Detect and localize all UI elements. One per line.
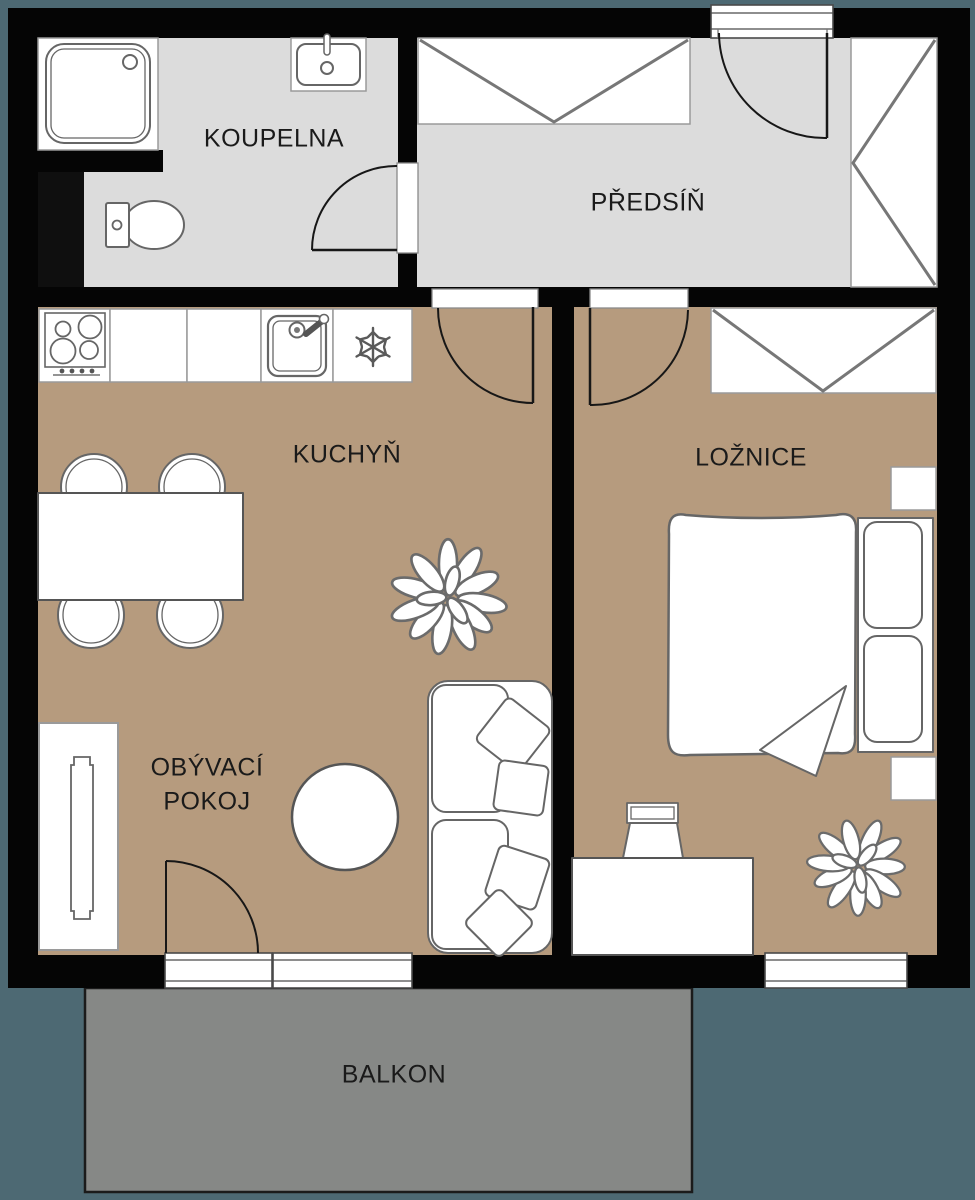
nightstand-icon (891, 757, 936, 800)
sofa-icon (428, 681, 552, 958)
stove-icon (39, 309, 110, 382)
dining-table-icon (38, 493, 243, 600)
nightstand-icon (891, 467, 936, 510)
toilet-icon (106, 201, 184, 249)
wardrobe-icon (851, 38, 937, 287)
window-icon (273, 953, 412, 988)
living-room-label-line1: OBÝVACÍ (151, 752, 264, 785)
counter-segment (110, 309, 187, 382)
kitchen-sink-icon (261, 309, 333, 382)
washbasin-icon (291, 34, 366, 91)
floor-plan: KOUPELNA PŘEDSÍŇ KUCHYŇ LOŽNICE OBÝVACÍ … (0, 0, 975, 1200)
hall-label: PŘEDSÍŇ (591, 187, 706, 220)
desk-icon (572, 858, 753, 955)
window-icon (765, 953, 907, 988)
counter-segment (187, 309, 261, 382)
wardrobe-icon (711, 308, 936, 393)
bathroom-label: KOUPELNA (204, 123, 344, 156)
shaft-niche (38, 172, 84, 287)
desk-chair-icon (623, 803, 683, 858)
balcony-label: BALKON (342, 1059, 446, 1092)
tv-stand-icon (39, 723, 118, 950)
freezer-icon (333, 309, 412, 382)
kitchen-label: KUCHYŇ (293, 439, 402, 472)
wardrobe-icon (418, 38, 690, 124)
bed-icon (668, 514, 933, 776)
shower-icon (38, 38, 158, 150)
coffee-table-icon (292, 764, 398, 870)
living-room-label-line2: POKOJ (163, 786, 250, 819)
bathroom-stub-wall (38, 150, 163, 172)
floor-plan-svg (0, 0, 975, 1200)
bedroom-label: LOŽNICE (695, 442, 807, 475)
